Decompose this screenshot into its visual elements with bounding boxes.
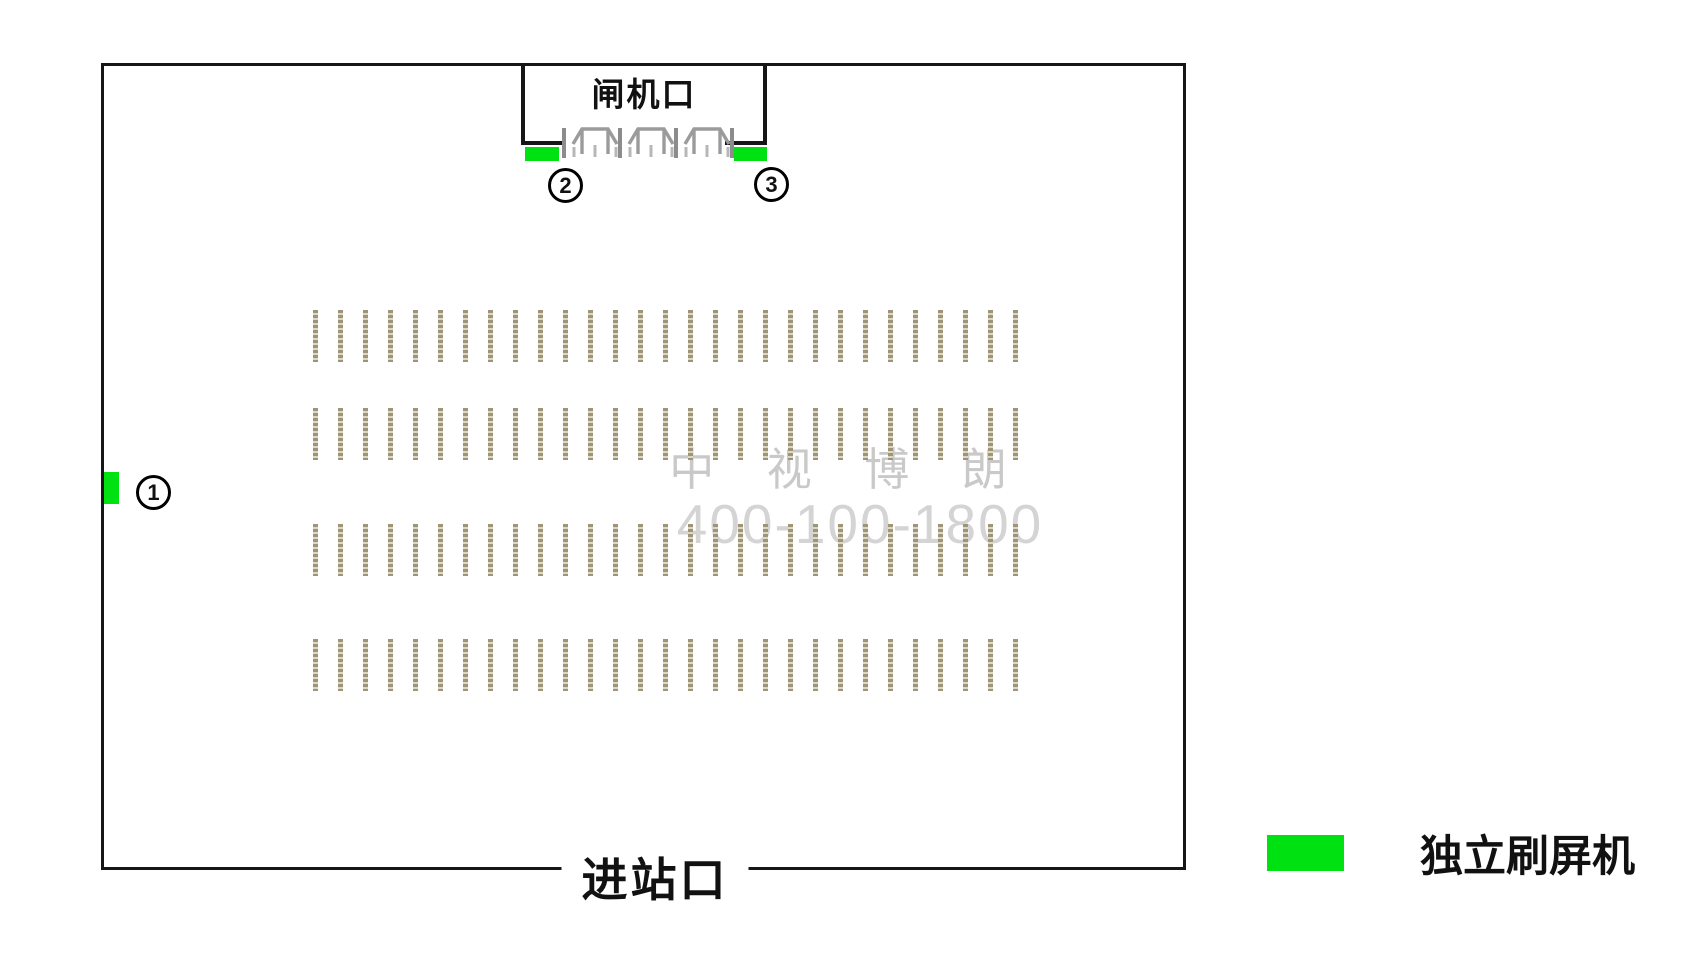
seat-tick <box>713 524 718 576</box>
seat-tick <box>888 639 893 691</box>
seat-tick <box>738 408 743 460</box>
seat-tick <box>363 310 368 362</box>
gate-wall-left-stub <box>521 141 563 145</box>
seat-tick <box>613 639 618 691</box>
seat-tick <box>513 310 518 362</box>
seat-tick <box>638 408 643 460</box>
seat-tick <box>463 310 468 362</box>
seat-tick <box>563 639 568 691</box>
seat-row-4 <box>313 639 1018 691</box>
legend-label: 独立刷屏机 <box>1420 822 1635 884</box>
seat-tick <box>388 524 393 576</box>
seat-tick <box>913 310 918 362</box>
seat-tick <box>938 639 943 691</box>
seat-tick <box>463 639 468 691</box>
marker-circle-3: 3 <box>754 167 789 202</box>
seat-row-3 <box>313 524 1018 576</box>
seat-tick <box>763 310 768 362</box>
seat-tick <box>688 524 693 576</box>
hall-outline <box>101 63 1186 870</box>
seat-tick <box>713 639 718 691</box>
seat-tick <box>863 524 868 576</box>
seat-tick <box>963 408 968 460</box>
seat-tick <box>738 639 743 691</box>
seat-tick <box>363 639 368 691</box>
legend: 独立刷屏机 <box>1267 822 1635 884</box>
seat-tick <box>463 408 468 460</box>
seat-tick <box>688 310 693 362</box>
seat-tick <box>363 524 368 576</box>
seat-tick <box>413 408 418 460</box>
screen-machine-2 <box>525 147 559 161</box>
seat-tick <box>963 639 968 691</box>
seat-tick <box>763 524 768 576</box>
seat-tick <box>538 310 543 362</box>
seat-tick <box>438 524 443 576</box>
seat-tick <box>938 524 943 576</box>
seat-tick <box>338 310 343 362</box>
seat-tick <box>838 408 843 460</box>
seat-tick <box>788 524 793 576</box>
seat-tick <box>313 408 318 460</box>
station-entrance-label: 进站口 <box>562 844 749 910</box>
seat-row-1 <box>313 310 1018 362</box>
seat-tick <box>563 408 568 460</box>
seat-tick <box>813 310 818 362</box>
screen-machine-1 <box>104 472 119 504</box>
marker-3-number: 3 <box>765 174 777 196</box>
seat-tick <box>388 639 393 691</box>
seat-tick <box>988 408 993 460</box>
seat-tick <box>488 639 493 691</box>
seat-tick <box>338 524 343 576</box>
seat-tick <box>913 639 918 691</box>
seat-tick <box>1013 639 1018 691</box>
seat-tick <box>563 524 568 576</box>
seat-tick <box>863 639 868 691</box>
seat-tick <box>963 310 968 362</box>
seat-tick <box>688 408 693 460</box>
gate-wall-left <box>521 63 525 145</box>
seat-tick <box>588 639 593 691</box>
seat-tick <box>788 310 793 362</box>
seat-tick <box>763 639 768 691</box>
seat-tick <box>638 310 643 362</box>
seat-tick <box>813 408 818 460</box>
seat-tick <box>713 408 718 460</box>
seat-tick <box>538 639 543 691</box>
seat-tick <box>938 310 943 362</box>
seat-tick <box>988 639 993 691</box>
seat-tick <box>813 524 818 576</box>
seat-tick <box>963 524 968 576</box>
seat-tick <box>838 639 843 691</box>
legend-green-swatch <box>1267 835 1344 871</box>
seat-tick <box>663 408 668 460</box>
seat-tick <box>763 408 768 460</box>
marker-circle-2: 2 <box>548 168 583 203</box>
seat-tick <box>663 524 668 576</box>
seat-tick <box>588 524 593 576</box>
seat-tick <box>788 639 793 691</box>
marker-circle-1: 1 <box>136 475 171 510</box>
seat-tick <box>338 408 343 460</box>
seat-tick <box>838 524 843 576</box>
seat-tick <box>513 408 518 460</box>
marker-1-number: 1 <box>147 482 159 504</box>
seat-tick <box>513 524 518 576</box>
seat-tick <box>488 408 493 460</box>
seat-tick <box>588 310 593 362</box>
seat-tick <box>338 639 343 691</box>
seat-row-2 <box>313 408 1018 460</box>
seat-tick <box>913 408 918 460</box>
seat-tick <box>563 310 568 362</box>
seat-tick <box>663 639 668 691</box>
seat-tick <box>413 310 418 362</box>
seat-tick <box>488 310 493 362</box>
seat-tick <box>438 639 443 691</box>
seat-tick <box>438 310 443 362</box>
seat-tick <box>888 524 893 576</box>
seat-tick <box>638 524 643 576</box>
seat-tick <box>788 408 793 460</box>
seat-tick <box>413 639 418 691</box>
seat-tick <box>313 639 318 691</box>
seat-tick <box>988 310 993 362</box>
seat-tick <box>638 639 643 691</box>
seat-tick <box>938 408 943 460</box>
seat-tick <box>838 310 843 362</box>
seat-tick <box>1013 408 1018 460</box>
seat-tick <box>538 524 543 576</box>
seat-tick <box>588 408 593 460</box>
seat-tick <box>813 639 818 691</box>
seat-tick <box>1013 524 1018 576</box>
seat-tick <box>688 639 693 691</box>
marker-2-number: 2 <box>559 175 571 197</box>
seat-tick <box>663 310 668 362</box>
seat-tick <box>313 310 318 362</box>
seat-tick <box>613 408 618 460</box>
seat-tick <box>738 524 743 576</box>
seat-tick <box>613 310 618 362</box>
station-layout-diagram: 中 视 博 朗 400-100-1800 闸机口 1 <box>0 0 1706 960</box>
seat-tick <box>1013 310 1018 362</box>
seat-tick <box>388 310 393 362</box>
seat-tick <box>488 524 493 576</box>
seat-tick <box>613 524 618 576</box>
turnstile-gates-icon <box>560 123 734 161</box>
seat-tick <box>888 310 893 362</box>
gate-wall-right <box>763 63 767 145</box>
seat-tick <box>913 524 918 576</box>
gate-entrance-label: 闸机口 <box>592 68 697 116</box>
seat-tick <box>388 408 393 460</box>
seat-tick <box>713 310 718 362</box>
seat-tick <box>313 524 318 576</box>
seat-tick <box>538 408 543 460</box>
seat-tick <box>463 524 468 576</box>
screen-machine-3 <box>734 147 767 161</box>
seat-tick <box>413 524 418 576</box>
seat-tick <box>363 408 368 460</box>
seat-tick <box>863 408 868 460</box>
seat-tick <box>988 524 993 576</box>
seat-tick <box>438 408 443 460</box>
seat-tick <box>888 408 893 460</box>
seat-tick <box>863 310 868 362</box>
seat-tick <box>738 310 743 362</box>
seat-tick <box>513 639 518 691</box>
